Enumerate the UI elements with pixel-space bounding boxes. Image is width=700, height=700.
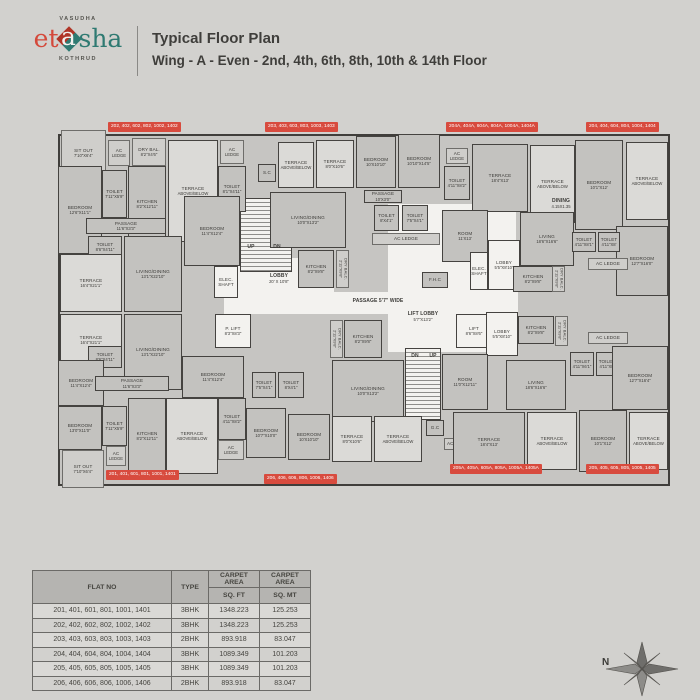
room-dimensions: ABOVE/BELOW (633, 441, 664, 446)
terrace-room: TERRACEABOVE/BELOW (527, 412, 577, 470)
bedroom-room: BEDROOM10'1"X12' (579, 410, 627, 472)
bedroom-room: BEDROOM10'7"X10'0" (246, 408, 286, 458)
toilet-room: TOILET7'5"X4'1" (252, 372, 276, 398)
room-dimensions: 18'4"X13' (491, 178, 509, 183)
flat-number-tag: 204, 404, 604, 804, 1004, 1404 (586, 122, 659, 132)
area-table-body: 201, 401, 601, 801, 1001, 14013BHK1348.2… (33, 604, 311, 691)
room-label: UP (429, 353, 436, 359)
room-label: AC LEDGE (596, 335, 620, 341)
cell-type: 3BHK (172, 647, 209, 662)
flat-number-tag: 205A, 405A, 605A, 805A, 1005A, 1405A (450, 464, 542, 474)
col-carpet-sqft: CARPET AREA (209, 571, 260, 588)
room-dimensions: 8'6"X8'6" (466, 331, 483, 336)
bedroom-room: BEDROOM11'4"X12'4" (184, 196, 240, 266)
brochure-page: VASUDHA et a sha KOTHRUD Typical Floor P… (0, 0, 700, 700)
flat-number-tag: 204A, 404A, 604A, 804A, 1004A, 1404A (446, 122, 538, 132)
col-sqmt: SQ. MT (260, 588, 311, 604)
toilet-room: TOILET7'11"X5'9" (102, 170, 127, 218)
room-dimensions: 18'4"X13' (480, 442, 498, 447)
brand-bottom-label: KOTHRUD (26, 56, 130, 62)
dry-balc-room: DRY BALC.2'11"X9'8" (330, 320, 343, 358)
bedroom-room: BEDROOM13'0"X11'0" (58, 406, 102, 450)
room-dimensions: 10'X3'0" (375, 197, 390, 202)
cell-type: 2BHK (172, 676, 209, 691)
room-dimensions: 5'7"X13'2" (413, 317, 432, 322)
cell-sqmt: 101.203 (260, 662, 311, 677)
dry-bal-room: DRY BAL.8'2"X4'6" (132, 138, 166, 166)
col-carpet-sqmt: CARPET AREA (260, 571, 311, 588)
area-table-header: FLAT NO TYPE CARPET AREA CARPET AREA SQ.… (33, 571, 311, 604)
room-label: DN (273, 244, 280, 250)
room-dimensions: 8'X4'1" (380, 218, 393, 223)
toilet-room: TOILET7'11"X5'9" (102, 406, 127, 446)
table-row: 202, 402, 602, 802, 1002, 14023BHK1348.2… (33, 618, 311, 633)
cell-flats: 204, 404, 604, 804, 1004, 1404 (33, 647, 172, 662)
room-dimensions: 7'11"X5'9" (105, 194, 124, 199)
flat-number-tag: 201, 401, 601, 801, 1001, 1401 (106, 470, 179, 480)
room-dimensions: 7'10"X6'4" (73, 469, 92, 474)
elec-shaft-room: ELEC. SHAFT (470, 252, 488, 290)
room-dimensions: 18'6"X16'6" (536, 239, 557, 244)
passage-room: PASSAGE11'6"X3'3" (86, 218, 166, 234)
g-c-room: G.C (426, 420, 444, 436)
table-row: 201, 401, 601, 801, 1001, 14013BHK1348.2… (33, 604, 311, 619)
living-dining-room: LIVING/DINING10'0"X13'2" (270, 192, 346, 248)
bedroom-room: BEDROOM10'1"X12' (575, 140, 623, 230)
terrace-room: TERRACEABOVE/BELOW (166, 398, 218, 474)
f-h-c-room: F.H.C (422, 272, 448, 288)
room-dimensions: 11'4"X12'4" (202, 377, 223, 382)
cell-sqft: 893.918 (209, 676, 260, 691)
cell-type: 3BHK (172, 662, 209, 677)
toilet-room: TOILET4'11"X8'2" (218, 398, 246, 440)
room-label: S.C (263, 170, 271, 176)
header-divider (137, 26, 138, 76)
dry-balc-room: DRY BALC.2'11"X9'8" (555, 316, 568, 346)
ac-room: ACLEDGE (108, 140, 130, 166)
room-dimensions: 10'X10'10" (366, 162, 386, 167)
ac-room: ACLEDGE (220, 140, 244, 164)
bedroom-room: BEDROOM11'4"X12'4" (182, 356, 244, 398)
room-dimensions: 7'11"X5'9" (105, 426, 124, 431)
lobby-room: LOBBY20' X 10'8" (234, 264, 324, 294)
table-row: 204, 404, 604, 804, 1004, 14043BHK1089.3… (33, 647, 311, 662)
kitchen-room: KITCHEN8'2"X9'8" (344, 320, 382, 358)
flat-number-tag: 206, 406, 606, 806, 1006, 1406 (264, 474, 337, 484)
north-label: N (602, 657, 609, 668)
cell-type: 2BHK (172, 633, 209, 648)
toilet-room: TOILET4'11"X8'2" (444, 166, 470, 200)
room-dimensions: 11'X13' (458, 236, 471, 241)
room-dimensions: 4'11"X8'1" (575, 242, 594, 247)
room-dimensions: 13'0"X11'0" (69, 428, 90, 433)
room-label: AC LEDGE (596, 261, 620, 267)
cell-sqft: 1348.223 (209, 604, 260, 619)
col-type: TYPE (172, 571, 209, 604)
cell-sqft: 893.918 (209, 633, 260, 648)
bedroom-room: BEDROOM10'X10'10" (288, 414, 330, 460)
ac-room: ACLEDGE (446, 148, 468, 164)
room-dimensions: 7'5"X4'1" (256, 385, 273, 390)
toilet-room: TOILET4'11"X8'1" (572, 232, 596, 252)
up-room: UP (244, 242, 258, 252)
room-dimensions: 10'10"X14'5" (407, 161, 431, 166)
cell-sqft: 1089.349 (209, 647, 260, 662)
room-dimensions: 11'6"X3'3" (117, 226, 136, 231)
room-dimensions: 10'X10'10" (299, 437, 319, 442)
living-room: LIVING18'6"X16'6" (520, 212, 574, 266)
room-dimensions: 2'11"X9'8" (557, 322, 562, 340)
room-dimensions: 10'0"X13'2" (297, 220, 318, 225)
room-dimensions: 16'4"X21'1" (80, 340, 101, 345)
room-dimensions: 8'0"X10'6" (342, 439, 361, 444)
room-dimensions: LEDGE (224, 450, 238, 455)
table-row: 206, 406, 606, 806, 1006, 14062BHK893.91… (33, 676, 311, 691)
kitchen-room: KITCHEN8'2"X9'8" (513, 266, 553, 292)
dining-room: DINING4.15X1.35 (545, 196, 577, 211)
room-label: AC LEDGE (394, 236, 418, 242)
room-label: G.C (431, 425, 439, 431)
room-dimensions: ABOVE/BELOW (281, 165, 312, 170)
living-room: LIVING18'6"X16'6" (506, 360, 566, 410)
brand-word-right: sha (79, 24, 123, 54)
up-room: UP (426, 351, 440, 361)
cell-flats: 205, 405, 605, 805, 1005, 1405 (33, 662, 172, 677)
kitchen-room: KITCHEN8'2"X12'11" (128, 398, 166, 474)
passage-room: PASSAGE11'6"X3'3" (95, 376, 169, 391)
terrace-room: TERRACE18'4"X13' (472, 144, 528, 212)
room-dimensions: 8'2"X12'11" (136, 436, 157, 441)
terrace-room: TERRACEABOVE/BELOW (626, 142, 668, 220)
room-dimensions: 8'2"X9'8" (525, 279, 542, 284)
room-dimensions: 8'3"X8'3" (225, 331, 242, 336)
cell-type: 3BHK (172, 604, 209, 619)
brand-wordmark: et a sha (26, 22, 130, 56)
table-row: 205, 405, 605, 805, 1005, 14053BHK1089.3… (33, 662, 311, 677)
terrace-room: TERRACE8'0"X10'6" (332, 416, 372, 462)
living-dining-room: LIVING/DINING13'1"X22'10" (124, 236, 182, 312)
terrace-room: TERRACE16'4"X21'1" (60, 254, 122, 312)
room-dimensions: ABOVE/BELOW (537, 184, 568, 189)
room-dimensions: 8'2"X12'11" (136, 204, 157, 209)
room-dimensions: ABOVE/BELOW (537, 441, 568, 446)
dn-room: DN (408, 351, 422, 361)
ac-room: ACLEDGE (218, 440, 244, 460)
room-dimensions: 4'11"X8' (602, 242, 617, 247)
brand-word-mid: a (57, 22, 81, 52)
room-dimensions: 8'1"X4'11" (223, 189, 242, 194)
compass: N (594, 640, 690, 698)
room-dimensions: 4.15X1.35 (551, 204, 570, 209)
flat-number-tag: 205, 405, 605, 805, 1005, 1405 (586, 464, 659, 474)
ac-ledge-room: AC LEDGE (588, 258, 628, 270)
room-dimensions: LEDGE (225, 152, 239, 157)
flat-number-tag: 202, 402, 602, 802, 1002, 1402 (108, 122, 181, 132)
terrace-room: TERRACEABOVE/BELOW (629, 412, 668, 470)
bedroom-room: BEDROOM10'X10'10" (356, 136, 396, 188)
lobby-room: LOBBY5'5"X8'10" (486, 312, 518, 356)
room-dimensions: 12'6"X11'1" (69, 210, 90, 215)
cell-flats: 201, 401, 601, 801, 1001, 1401 (33, 604, 172, 619)
room-dimensions: 7'10"X6'4" (74, 153, 93, 158)
cell-sqmt: 83.047 (260, 633, 311, 648)
room-dimensions: LEDGE (450, 156, 464, 161)
room-dimensions: 10'7"X10'0" (255, 433, 276, 438)
room-dimensions: 4'11"X8'2" (448, 183, 467, 188)
sit-out-room: SIT OUT7'10"X6'4" (62, 450, 104, 488)
cell-sqft: 1089.349 (209, 662, 260, 677)
room-dimensions: 11'4"X12'4" (201, 231, 222, 236)
room-dimensions: 10'1"X12' (590, 185, 608, 190)
toilet-room: TOILET8'X4'1" (278, 372, 304, 398)
room-dimensions: 2'11"X9'8" (554, 270, 559, 288)
living-dining-room: LIVING/DINING10'0"X13'2" (332, 360, 404, 422)
room-dimensions: 8'X4'1" (285, 385, 298, 390)
terrace-room: TERRACEABOVE/BELOW (374, 416, 422, 462)
room-dimensions: 8'2"X9'8" (528, 330, 545, 335)
col-flat-no: FLAT NO (33, 571, 172, 604)
room-dimensions: LEDGE (112, 153, 126, 158)
room-dimensions: 11'0"X12'11" (453, 382, 476, 387)
page-title: Typical Floor Plan (152, 30, 280, 47)
toilet-room: TOILET4'11"X8' (598, 232, 620, 252)
toilet-room: TOILET4'11"X6'1" (570, 352, 594, 376)
room-dimensions: 11'6"X3'3" (123, 384, 142, 389)
room-label: F.H.C (429, 277, 441, 283)
ac-room: ACLEDGE (106, 446, 126, 466)
p-lift-room: P. LIFT8'3"X8'3" (215, 314, 251, 348)
room-dimensions: 16'4"X21'1" (80, 283, 101, 288)
passage-room: PASSAGE10'X3'0" (364, 190, 402, 203)
room-label: UP (247, 244, 254, 250)
cell-flats: 202, 402, 602, 802, 1002, 1402 (33, 618, 172, 633)
flat-number-tag: 203, 403, 603, 803, 1003, 1403 (265, 122, 338, 132)
brand-diamond-icon: a (57, 27, 81, 51)
room-dimensions: 8'2"X9'8" (355, 339, 372, 344)
area-table: FLAT NO TYPE CARPET AREA CARPET AREA SQ.… (32, 570, 311, 691)
table-row: 203, 403, 603, 803, 1003, 14032BHK893.91… (33, 633, 311, 648)
terrace-room: TERRACE8'0"X10'6" (316, 140, 354, 188)
room-dimensions: 12'7"X16'0" (631, 261, 652, 266)
compass-rose-icon (594, 640, 690, 698)
terrace-room: TERRACEABOVE/BELOW (278, 142, 314, 188)
room-dimensions: 2'11"X9'8" (332, 330, 337, 348)
room-dimensions: 10'1"X12' (594, 441, 612, 446)
room-dimensions: 2'11"X9'8" (338, 260, 343, 278)
toilet-room: TOILET7'5"X4'1" (402, 205, 428, 231)
room-dimensions: ABOVE/BELOW (383, 439, 414, 444)
room-dimensions: 5'5"X8'10" (492, 334, 511, 339)
room-label: DN (411, 353, 418, 359)
dn-room: DN (270, 242, 284, 252)
toilet-room: TOILET8'X4'1" (374, 205, 399, 231)
room-dimensions: ABOVE/BELOW (177, 436, 208, 441)
dry-balc-room: DRY BALC.2'11"X9'8" (552, 266, 565, 292)
room-dimensions: 18'6"X16'6" (525, 385, 546, 390)
cell-sqmt: 125.253 (260, 604, 311, 619)
room-dimensions: 7'5"X4'1" (407, 218, 424, 223)
brand-logo: VASUDHA et a sha KOTHRUD (26, 16, 130, 80)
cell-sqmt: 101.203 (260, 647, 311, 662)
room-dimensions: ABOVE/BELOW (632, 181, 663, 186)
room-label: ELEC. SHAFT (471, 266, 487, 277)
room-dimensions: 8'2"X4'6" (141, 152, 158, 157)
ac-ledge-room: AC LEDGE (588, 332, 628, 344)
room-dimensions: 5'5"X8'10" (494, 265, 513, 270)
page-subtitle: Wing - A - Even - 2nd, 4th, 6th, 8th, 10… (152, 53, 487, 68)
floor-plan: SIT OUT7'10"X6'4"ACLEDGEDRY BAL.8'2"X4'6… (58, 108, 670, 500)
room-dimensions: 8'6"X4'11" (96, 247, 115, 252)
dry-balc-room: DRY BALC.2'11"X9'8" (336, 250, 349, 288)
bedroom-room: BEDROOM10'10"X14'5" (398, 134, 440, 188)
room-dimensions: 20' X 10'8" (269, 279, 289, 284)
room-room: ROOM11'0"X12'11" (442, 354, 488, 410)
room-dimensions: LEDGE (109, 456, 123, 461)
room-dimensions: 4'11"X8'2" (223, 419, 242, 424)
room-dimensions: 13'1"X22'10" (141, 274, 165, 279)
room-dimensions: 13'1"X22'10" (141, 352, 165, 357)
bedroom-room: BEDROOM12'7"X16'4" (612, 346, 668, 410)
room-dimensions: 4'11"X6'1" (573, 364, 592, 369)
col-sqft: SQ. FT (209, 588, 260, 604)
kitchen-room: KITCHEN8'2"X9'8" (518, 316, 554, 344)
terrace-room: TERRACE18'4"X13' (453, 412, 525, 472)
cell-flats: 203, 403, 603, 803, 1003, 1403 (33, 633, 172, 648)
cell-sqft: 1348.223 (209, 618, 260, 633)
brand-word-left: et (34, 24, 59, 54)
ac-ledge-room: AC LEDGE (372, 233, 440, 245)
room-dimensions: 8'0"X10'6" (325, 164, 344, 169)
room-dimensions: 10'0"X13'2" (357, 391, 378, 396)
s-c-room: S.C (258, 164, 276, 182)
cell-type: 3BHK (172, 618, 209, 633)
cell-flats: 206, 406, 606, 806, 1006, 1406 (33, 676, 172, 691)
cell-sqmt: 83.047 (260, 676, 311, 691)
lift-lobby-room: LIFT LOBBY5'7"X13'2" (394, 304, 452, 330)
room-dimensions: 12'7"X16'4" (629, 378, 650, 383)
room-dimensions: 11'4"X12'4" (70, 383, 91, 388)
cell-sqmt: 125.253 (260, 618, 311, 633)
